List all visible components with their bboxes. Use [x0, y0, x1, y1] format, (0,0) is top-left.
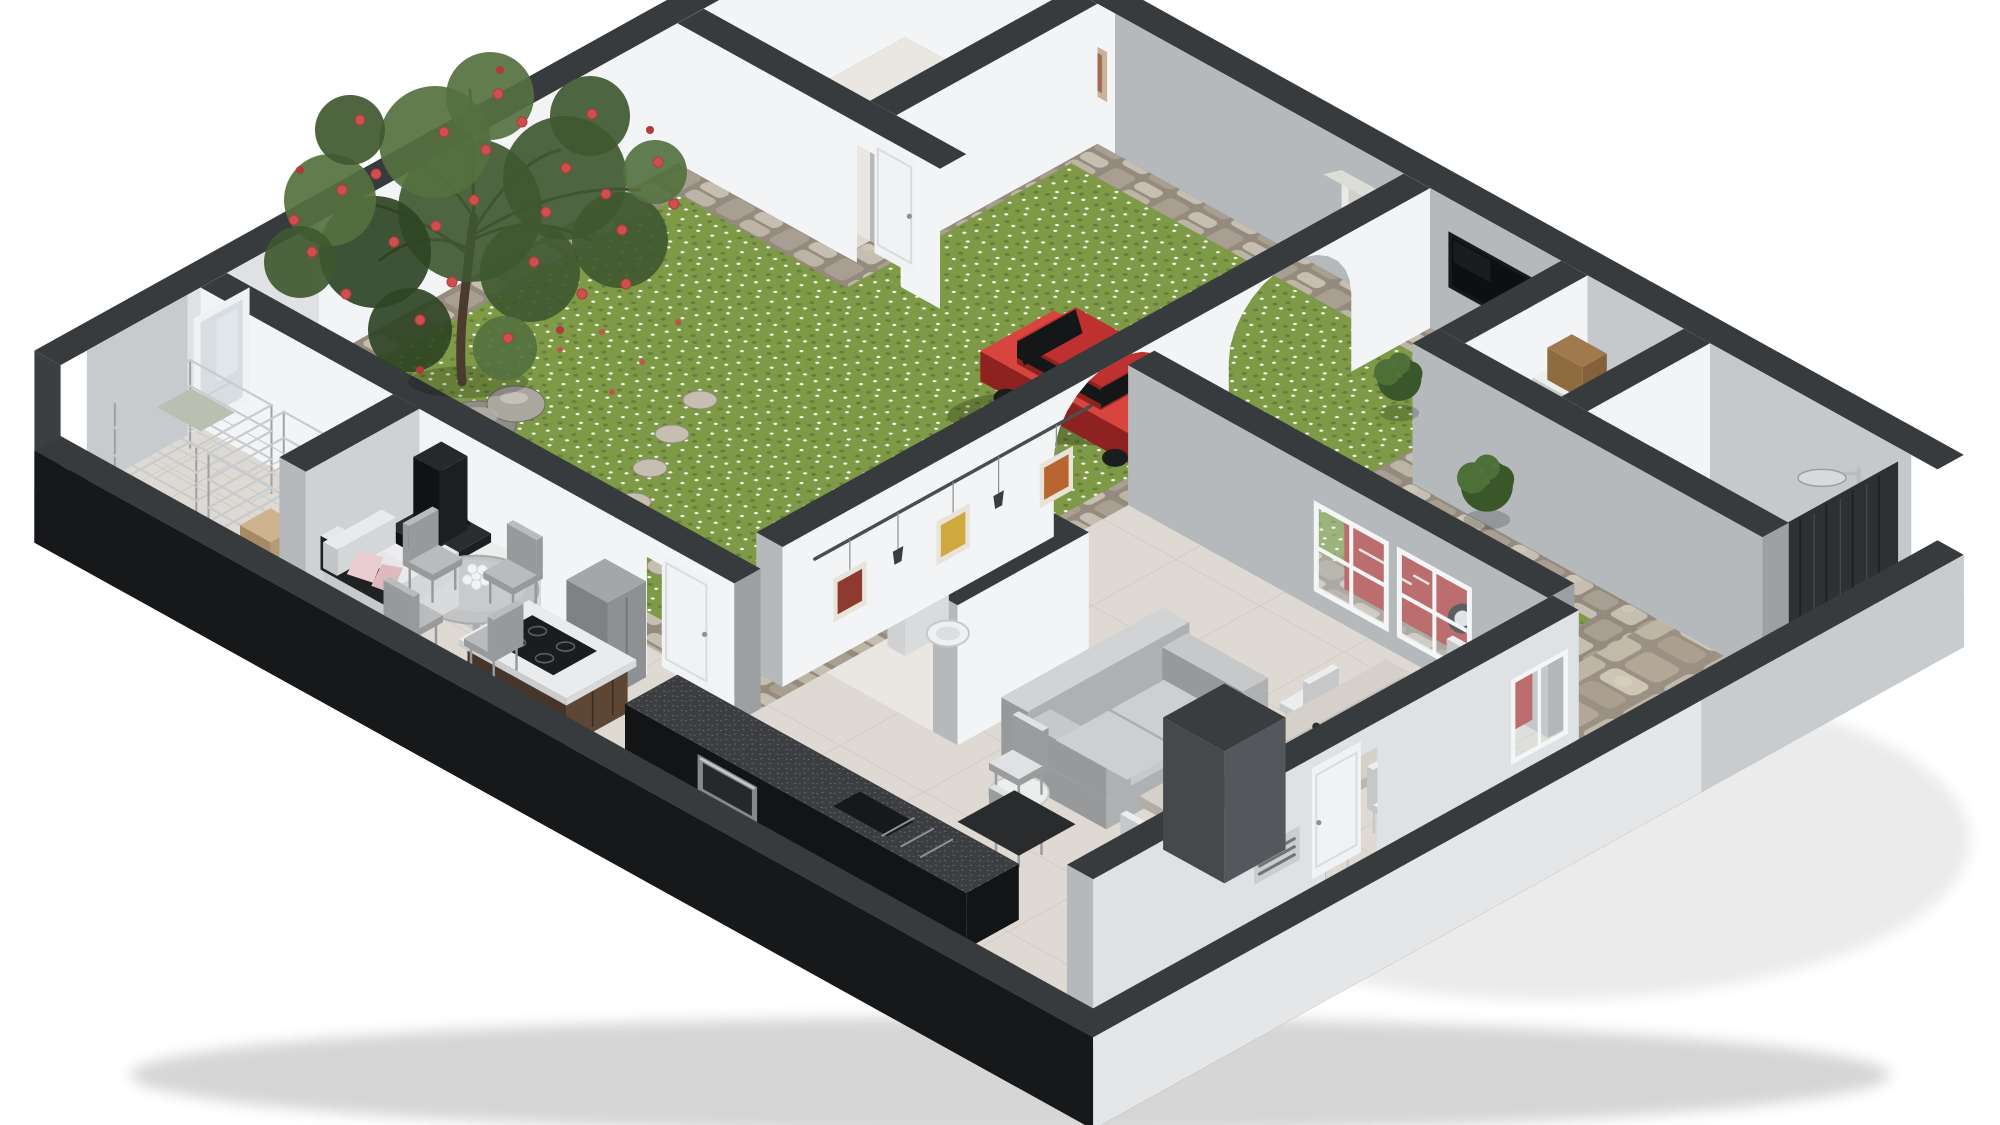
tree-flower — [447, 277, 457, 287]
tree-flower — [669, 199, 679, 209]
canopy-cluster — [315, 95, 385, 165]
plant-leaf — [1484, 479, 1490, 485]
plant-shadow — [1380, 405, 1420, 422]
canopy-cluster — [623, 140, 687, 204]
canopy-cluster — [572, 192, 668, 288]
chair-back-side-e — [537, 537, 543, 575]
tree-flower — [307, 247, 317, 257]
door-knob — [702, 632, 707, 637]
tree-flower — [439, 127, 449, 137]
tree-flower — [653, 157, 663, 167]
plant-leaf — [1478, 469, 1484, 475]
tree-flower — [496, 66, 504, 74]
apartment — [34, 0, 1970, 1125]
tree-flower — [431, 221, 441, 231]
shower-head — [1798, 469, 1846, 486]
tall-cabinet — [1163, 684, 1286, 884]
tree-flower — [371, 169, 381, 179]
canopy-cluster — [480, 222, 580, 322]
canopy-cluster — [473, 316, 537, 380]
stepping-stone — [633, 459, 667, 477]
tree-flower — [415, 315, 425, 325]
tree-flower — [646, 126, 654, 134]
mirror-reflection — [216, 308, 237, 382]
floor-plan-scene — [0, 0, 2000, 1125]
plant-leaf — [1492, 463, 1498, 469]
plant-leaf — [1396, 372, 1402, 378]
tree-flower — [541, 207, 551, 217]
tree-flower — [481, 145, 491, 155]
fallen-petal — [599, 329, 605, 335]
garden-door — [874, 139, 914, 275]
door-knob — [1316, 820, 1321, 825]
tree-flower — [416, 366, 424, 374]
fallen-petal — [609, 389, 615, 395]
flower — [471, 580, 481, 590]
tree-flower — [493, 89, 503, 99]
tree-flower — [577, 289, 587, 299]
tree-flower — [601, 189, 611, 199]
tree-flower — [355, 115, 365, 125]
tree-flower — [337, 185, 347, 195]
tree-flower — [529, 257, 539, 267]
door-knob — [907, 214, 912, 219]
canopy-cluster — [264, 226, 336, 298]
car-wheel — [1102, 449, 1128, 467]
flower — [467, 564, 477, 574]
tree-flower — [389, 237, 399, 247]
tree-flower — [289, 215, 299, 225]
chair-back-side-e — [1042, 728, 1048, 766]
tree-flower — [621, 279, 631, 289]
tree-flower — [587, 109, 597, 119]
tree-flower — [503, 333, 513, 343]
plant-leaf — [1404, 356, 1410, 362]
stepping-stone — [655, 425, 689, 443]
chair-back-side-s — [1367, 767, 1373, 805]
kitchen-wall-end — [734, 569, 760, 724]
chair-back-side-s — [488, 617, 494, 655]
floor-plan-3d-render — [0, 0, 2000, 1125]
stepping-stone — [683, 391, 717, 409]
chair-back-side-s — [403, 523, 409, 561]
tree-flower — [296, 166, 304, 174]
fallen-petal — [675, 319, 681, 325]
tree-flower — [561, 163, 571, 173]
tree-flower — [469, 195, 479, 205]
fallen-petal — [639, 359, 645, 365]
plant-leaf — [1390, 362, 1396, 368]
fireplace-hood-side-e — [440, 456, 468, 545]
tree-flower — [341, 289, 351, 299]
toilet-seat — [936, 626, 960, 640]
tree-flower — [556, 326, 564, 334]
canopy-cluster — [368, 288, 452, 372]
fallen-petal — [557, 347, 563, 353]
tree-flower — [617, 225, 627, 235]
plant — [1374, 353, 1422, 422]
flower — [462, 575, 472, 585]
tree-flower — [517, 117, 527, 127]
chair-back-side-e — [413, 593, 419, 631]
